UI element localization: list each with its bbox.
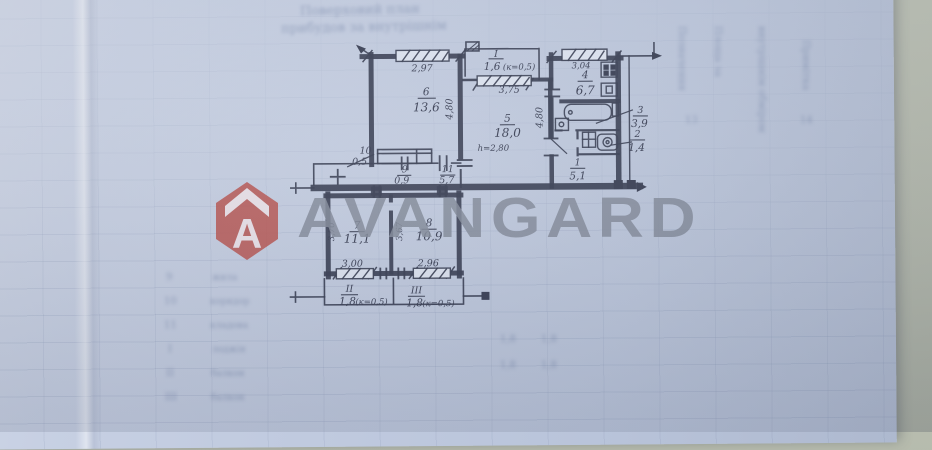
window <box>336 269 373 279</box>
kitchen-sink-icon <box>601 83 617 96</box>
dimension-label: 3,75 <box>499 85 520 96</box>
dimension-label: 3,00 <box>342 259 363 270</box>
room-area: 1,8 <box>339 296 356 308</box>
room-area: 1,8 <box>406 297 423 309</box>
ceiling-height-note: h=2,80 <box>478 144 510 154</box>
room-number: 1 <box>575 157 581 168</box>
room-area: 13,6 <box>413 100 440 114</box>
photo-of-floor-plan-document: { "watermark": { "brand": "AVANGARD", "l… <box>0 0 932 432</box>
dimension-label: 2,97 <box>410 63 433 74</box>
room-number: 6 <box>423 86 430 98</box>
room-area: 5,7 <box>439 175 455 186</box>
dimension-label: 4,80 <box>534 107 545 129</box>
room-area: 18,0 <box>494 126 521 140</box>
room-area-coef: (к=0,5) <box>503 62 535 73</box>
room-number: II <box>345 284 354 295</box>
logo-letter: A <box>232 210 262 257</box>
room-number: 10 <box>360 146 372 157</box>
toilet-icon <box>582 132 617 150</box>
label-fraction-lines <box>340 58 648 297</box>
room-number: 11 <box>442 164 454 175</box>
window <box>396 50 449 61</box>
window <box>562 49 607 60</box>
stove-icon <box>601 62 617 77</box>
room-area: 5,1 <box>569 170 586 182</box>
room-number: 9 <box>402 164 408 175</box>
room-number: III <box>410 285 423 296</box>
room-area: 0,9 <box>394 175 409 186</box>
room-area-coef: (к=0,5) <box>422 298 454 309</box>
room-number: 5 <box>504 113 511 125</box>
watermark-brand-text: AVANGARD <box>297 190 701 247</box>
dimension-label: 2,96 <box>417 258 439 269</box>
dimension-label: 3,04 <box>572 61 591 71</box>
room-number: 2 <box>633 129 640 140</box>
window <box>413 268 450 278</box>
room-area: 6,7 <box>576 83 596 97</box>
room-number: 3 <box>637 105 643 116</box>
avangard-logo-badge: A <box>216 182 278 260</box>
room-area: 1,4 <box>628 142 645 154</box>
room-area-coef: (к=0,5) <box>355 296 387 307</box>
room-area: 1,6 <box>484 61 501 73</box>
washbasin-icon <box>555 118 568 130</box>
room-number: I <box>493 49 498 60</box>
room-area: 0,5 <box>352 157 367 168</box>
leader-lines <box>347 110 632 167</box>
dimension-label: 4,80 <box>444 98 455 120</box>
